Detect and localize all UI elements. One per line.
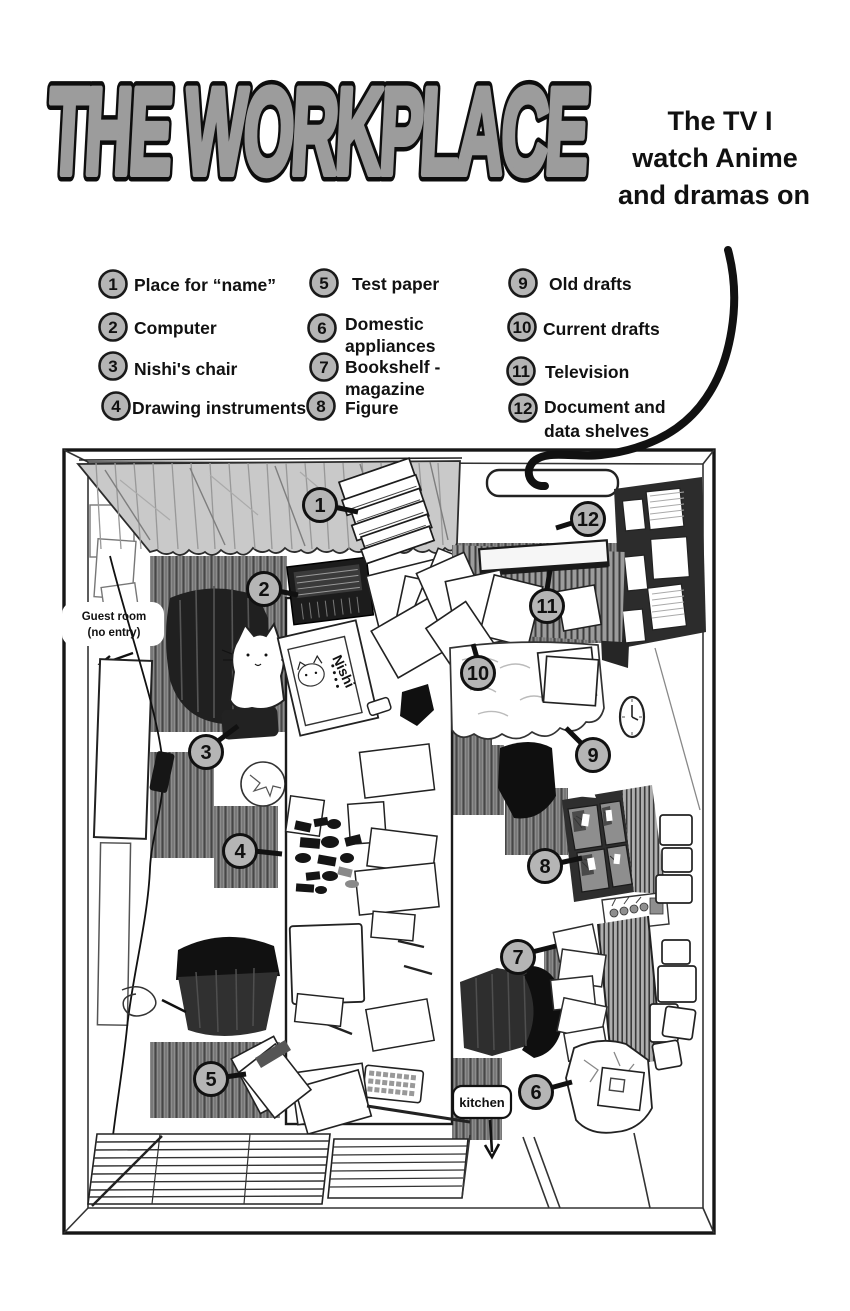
- svg-text:6: 6: [530, 1082, 541, 1104]
- svg-text:10: 10: [467, 663, 489, 685]
- svg-text:8: 8: [539, 856, 550, 878]
- svg-text:Guest room: Guest room: [82, 611, 147, 623]
- svg-text:3: 3: [200, 742, 211, 764]
- svg-text:Nishi's chair: Nishi's chair: [134, 359, 238, 379]
- svg-text:9: 9: [587, 745, 598, 767]
- svg-text:kitchen: kitchen: [459, 1095, 505, 1110]
- svg-text:Domestic: Domestic: [345, 314, 424, 334]
- svg-text:1: 1: [314, 495, 325, 517]
- svg-text:11: 11: [512, 362, 530, 381]
- svg-text:8: 8: [316, 397, 325, 416]
- svg-text:appliances: appliances: [345, 336, 436, 356]
- svg-text:Bookshelf -: Bookshelf -: [345, 357, 440, 377]
- svg-text:12: 12: [514, 399, 533, 418]
- svg-text:7: 7: [512, 947, 523, 969]
- svg-text:11: 11: [536, 596, 557, 618]
- svg-text:Computer: Computer: [134, 318, 217, 338]
- svg-text:Old drafts: Old drafts: [549, 274, 632, 294]
- svg-text:data shelves: data shelves: [544, 421, 649, 441]
- svg-text:2: 2: [108, 318, 117, 337]
- svg-text:10: 10: [513, 318, 532, 337]
- svg-text:Document and: Document and: [544, 397, 666, 417]
- svg-text:4: 4: [111, 397, 121, 416]
- svg-text:Current drafts: Current drafts: [543, 319, 660, 339]
- svg-text:5: 5: [319, 274, 328, 293]
- svg-text:Place for “name”: Place for “name”: [134, 275, 276, 295]
- svg-text:1: 1: [108, 275, 117, 294]
- svg-text:6: 6: [317, 319, 326, 338]
- svg-text:3: 3: [108, 357, 117, 376]
- svg-text:2: 2: [258, 579, 269, 601]
- svg-text:7: 7: [319, 358, 328, 377]
- svg-text:magazine: magazine: [345, 379, 425, 399]
- svg-text:and dramas on: and dramas on: [618, 180, 810, 210]
- svg-text:5: 5: [205, 1069, 216, 1091]
- svg-text:Figure: Figure: [345, 398, 399, 418]
- svg-text:watch Anime: watch Anime: [631, 143, 798, 173]
- svg-text:12: 12: [577, 509, 599, 531]
- svg-text:9: 9: [518, 274, 527, 293]
- svg-text:Television: Television: [545, 362, 629, 382]
- svg-text:THE WORKPLACE: THE WORKPLACE: [45, 63, 591, 201]
- svg-text:4: 4: [234, 841, 246, 863]
- svg-text:Drawing instruments: Drawing instruments: [132, 398, 306, 418]
- svg-text:The TV I: The TV I: [667, 106, 772, 136]
- svg-text:Test paper: Test paper: [352, 274, 439, 294]
